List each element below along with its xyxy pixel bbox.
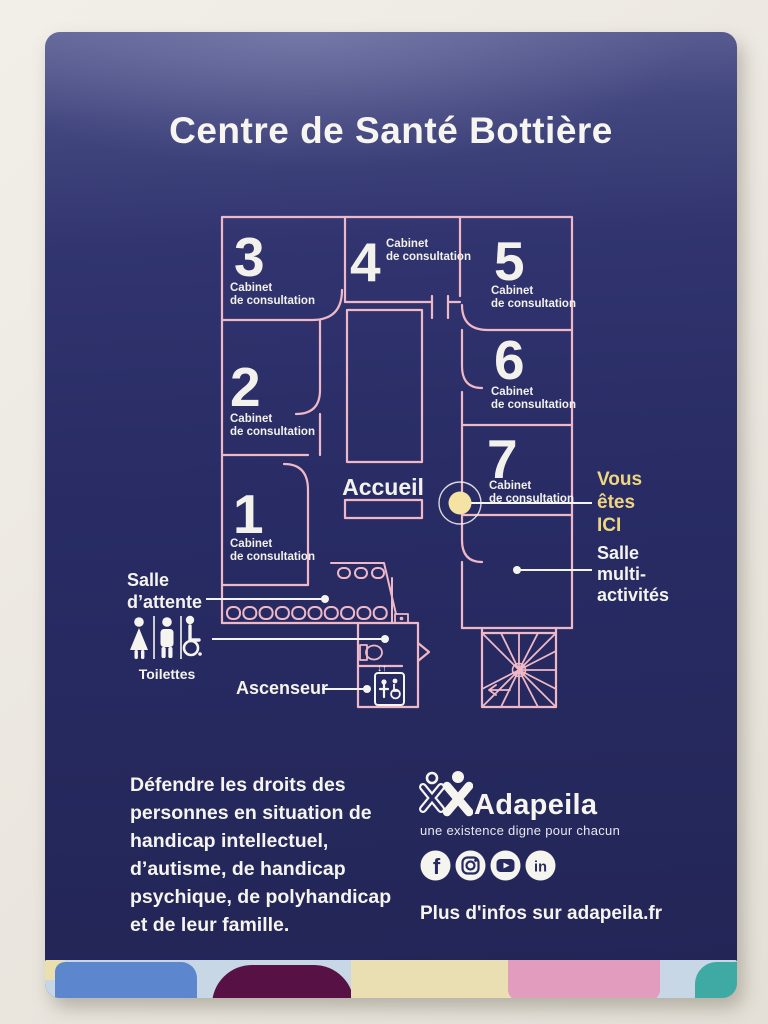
room-1-number: 1 bbox=[233, 483, 264, 545]
strip-blue-shape bbox=[55, 962, 197, 998]
reception-label: Accueil bbox=[342, 474, 424, 500]
svg-text:de consultation: de consultation bbox=[230, 426, 315, 438]
brand-name: Adapeila bbox=[474, 789, 597, 822]
room-6-number: 6 bbox=[494, 329, 525, 391]
instagram-icon bbox=[455, 850, 486, 881]
svg-text:de consultation: de consultation bbox=[230, 551, 315, 563]
youtube-icon bbox=[490, 850, 521, 881]
mission-text: Défendre les droits des personnes en sit… bbox=[130, 771, 420, 939]
waiting-chairs bbox=[227, 568, 387, 619]
toilet-block bbox=[358, 614, 429, 707]
toilets-label: Toilettes bbox=[125, 666, 209, 682]
toilets-icons bbox=[130, 616, 202, 659]
strip-maroon-dome bbox=[212, 965, 354, 998]
spiral-staircase bbox=[482, 628, 556, 707]
svg-text:Cabinet: Cabinet bbox=[230, 282, 272, 294]
elevator-icon: ↓↑ bbox=[375, 663, 404, 705]
svg-text:in: in bbox=[534, 860, 547, 876]
svg-text:de consultation: de consultation bbox=[386, 251, 471, 263]
reception-desk bbox=[345, 500, 422, 518]
room-4-number: 4 bbox=[350, 231, 381, 293]
decorative-strip bbox=[45, 960, 737, 998]
you-are-here-label: Vous êtes ICI bbox=[597, 468, 642, 537]
waiting-room-label: Salle d’attente bbox=[127, 569, 202, 613]
strip-cream-shape bbox=[351, 960, 511, 998]
room-3-number: 3 bbox=[234, 226, 265, 288]
wheelchair-icon bbox=[184, 616, 202, 656]
svg-text:Cabinet: Cabinet bbox=[230, 413, 272, 425]
svg-text:de consultation: de consultation bbox=[491, 298, 576, 310]
svg-text:Cabinet: Cabinet bbox=[230, 538, 272, 550]
elevator-label: Ascenseur bbox=[236, 678, 328, 699]
svg-text:de consultation: de consultation bbox=[491, 399, 576, 411]
svg-text:de consultation: de consultation bbox=[489, 493, 574, 505]
svg-text:Cabinet: Cabinet bbox=[386, 238, 428, 250]
floorplan: ↓↑ 1 Cabinet de consultation 2 Cabinet d… bbox=[120, 205, 600, 720]
sign-title: Centre de Santé Bottière bbox=[45, 110, 737, 152]
svg-text:f: f bbox=[433, 854, 441, 879]
reception-hall bbox=[347, 310, 422, 462]
man-icon bbox=[161, 617, 174, 658]
linkedin-icon: in bbox=[525, 850, 556, 881]
social-icons: f in bbox=[420, 850, 556, 881]
room-2-number: 2 bbox=[230, 356, 261, 418]
photo-of-sign: Centre de Santé Bottière bbox=[0, 0, 768, 1024]
brand-tagline: une existence digne pour chacun bbox=[420, 823, 620, 838]
door-swing bbox=[418, 643, 429, 661]
more-info-text: Plus d'infos sur adapeila.fr bbox=[420, 903, 662, 925]
facebook-icon: f bbox=[420, 850, 451, 881]
svg-text:Cabinet: Cabinet bbox=[491, 386, 533, 398]
strip-teal-shape bbox=[695, 962, 737, 998]
svg-text:de consultation: de consultation bbox=[230, 295, 315, 307]
adapeila-logo-icon bbox=[417, 770, 473, 820]
room-5-number: 5 bbox=[494, 230, 525, 292]
svg-text:Cabinet: Cabinet bbox=[489, 480, 531, 492]
svg-text:Cabinet: Cabinet bbox=[491, 285, 533, 297]
multi-activity-room-label: Salle multi- activités bbox=[597, 543, 669, 606]
room-labels: 1 Cabinet de consultation 2 Cabinet de c… bbox=[230, 226, 576, 563]
woman-icon bbox=[130, 617, 148, 659]
strip-pink-shape bbox=[508, 960, 660, 998]
leader-lines bbox=[206, 503, 592, 693]
